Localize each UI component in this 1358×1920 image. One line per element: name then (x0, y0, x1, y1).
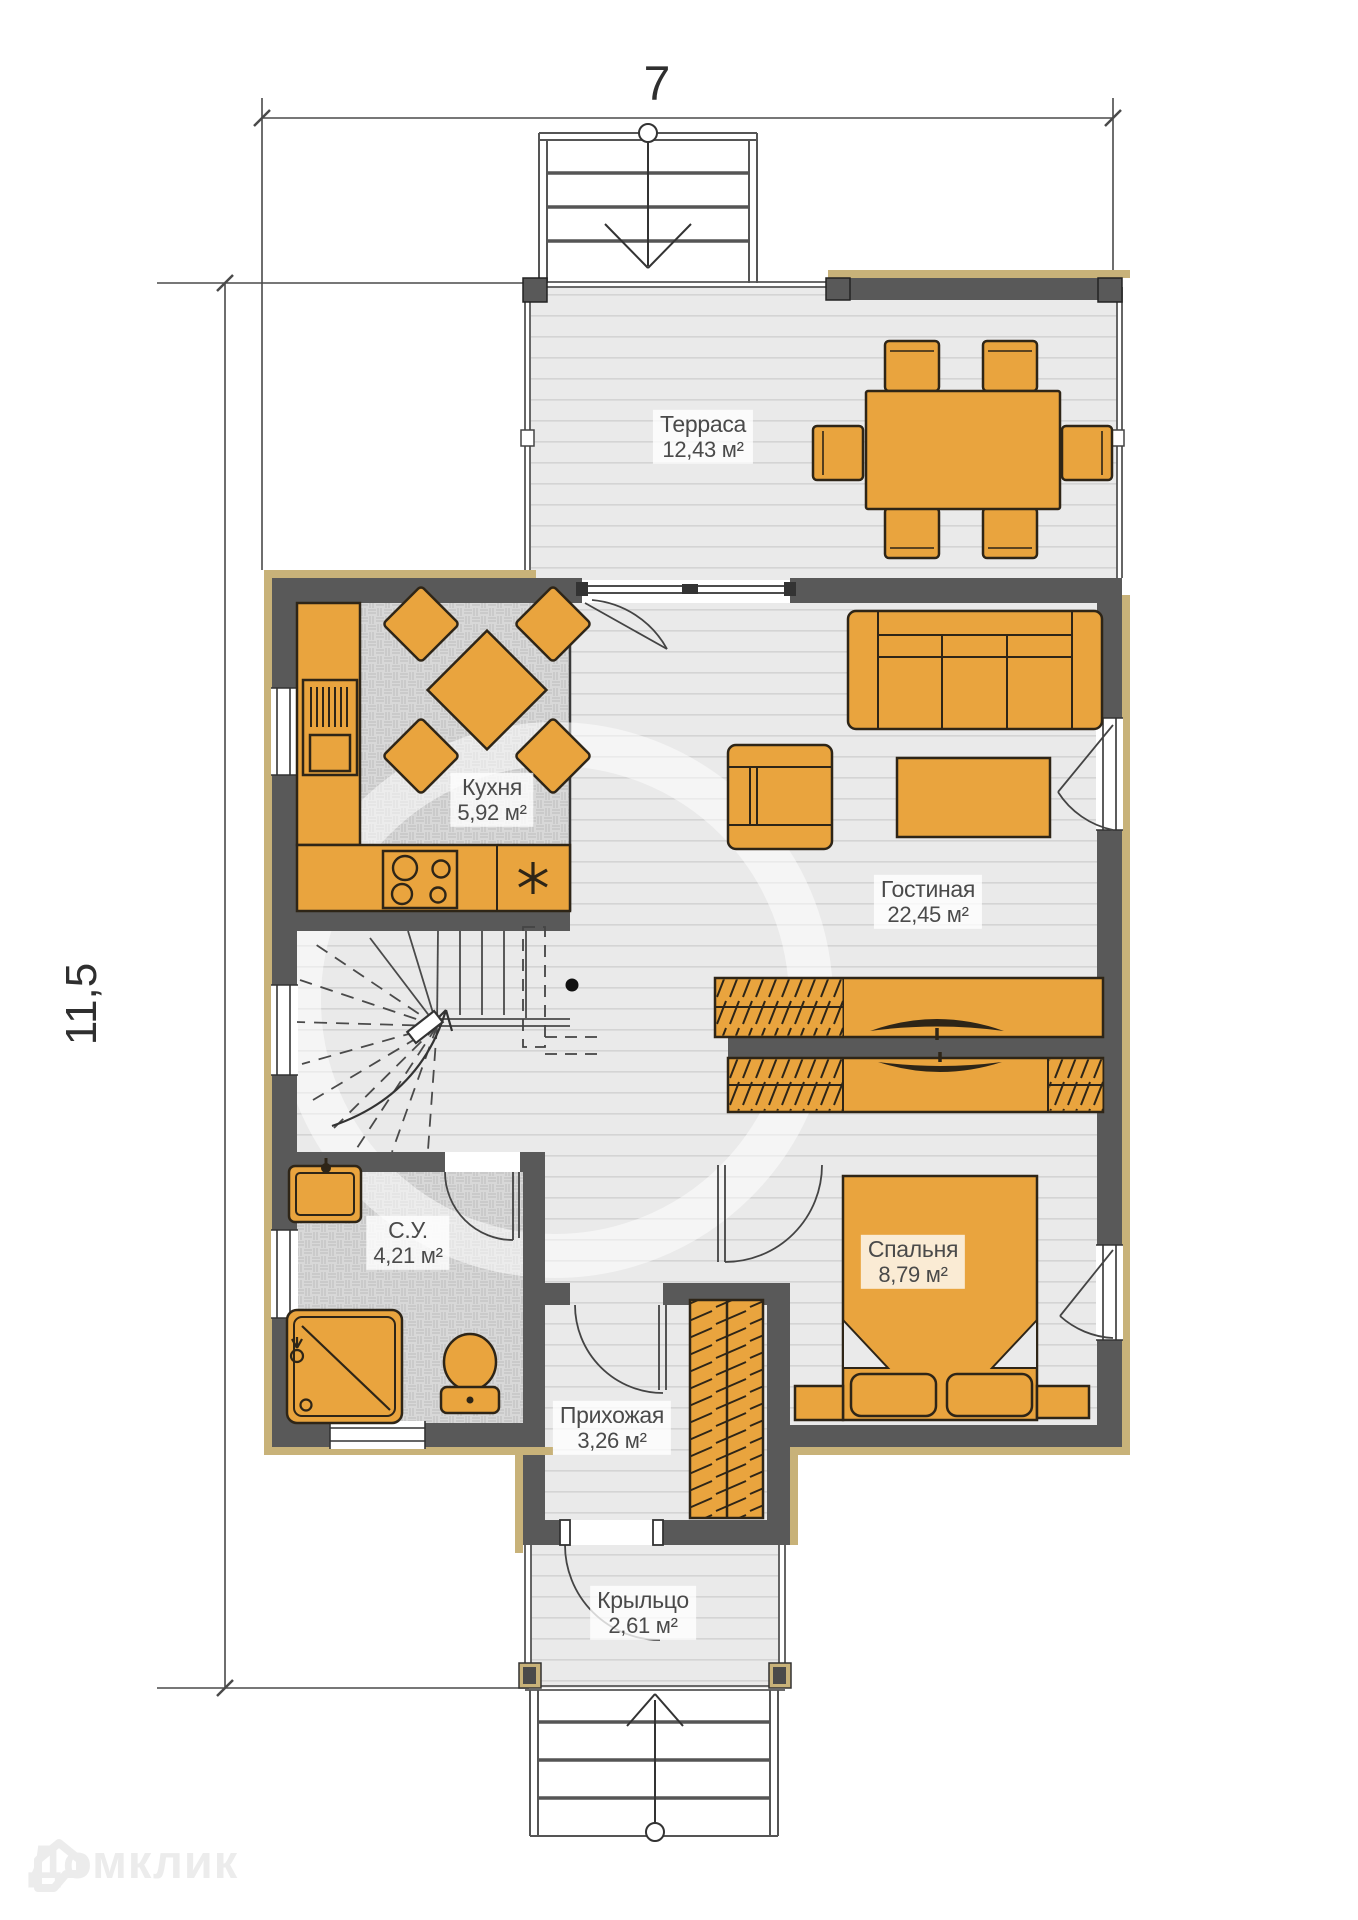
room-area: 12,43 м² (660, 438, 746, 463)
toilet-bowl (444, 1334, 496, 1390)
room-name: Гостиная (881, 877, 975, 903)
sofa (848, 611, 1102, 729)
room-area: 5,92 м² (457, 801, 526, 826)
chair (983, 508, 1037, 558)
dimension-width-label: 7 (644, 57, 671, 112)
chair (885, 508, 939, 558)
room-label-terrace: Терраса 12,43 м² (653, 410, 753, 464)
nightstand (1037, 1386, 1089, 1418)
pillow (947, 1374, 1032, 1416)
room-label-living: Гостиная 22,45 м² (874, 875, 982, 929)
room-area: 3,26 м² (560, 1429, 664, 1454)
porch-stairs (530, 1690, 778, 1841)
nightstand (795, 1386, 843, 1420)
armchair (728, 745, 832, 849)
coffee-table (897, 758, 1050, 837)
dining-table (866, 391, 1060, 509)
bathroom-sink (289, 1166, 361, 1222)
room-label-hallway: Прихожая 3,26 м² (553, 1401, 671, 1455)
room-name: Спальня (868, 1237, 958, 1263)
wardrobe-hatch (717, 980, 843, 1007)
room-label-bedroom: Спальня 8,79 м² (861, 1235, 965, 1289)
room-area: 4,21 м² (373, 1244, 442, 1269)
terrace-column (523, 278, 547, 302)
kitchen-furniture (297, 586, 591, 911)
stair-post-dot (566, 979, 579, 992)
room-area: 8,79 м² (868, 1263, 958, 1288)
room-label-kitchen: Кухня 5,92 м² (450, 773, 533, 827)
room-label-bathroom: С.У. 4,21 м² (366, 1216, 449, 1270)
room-area: 22,45 м² (881, 903, 975, 928)
terrace-column (826, 278, 850, 300)
chair (983, 341, 1037, 391)
room-name: Прихожая (560, 1403, 664, 1429)
chair (1062, 426, 1112, 480)
domclick-house-icon (28, 1834, 90, 1896)
floor-plan: Терраса 12,43 м² Кухня 5,92 м² Гостиная … (0, 0, 1358, 1920)
wardrobe-hatch (730, 1060, 843, 1086)
room-name: Крыльцо (597, 1588, 689, 1614)
chair (813, 426, 863, 480)
terrace-stairs (539, 124, 757, 283)
chair (885, 341, 939, 391)
room-label-porch: Крыльцо 2,61 м² (590, 1586, 696, 1640)
dimension-height-label: 11,5 (57, 963, 107, 1045)
terrace-column (1098, 278, 1122, 302)
room-name: С.У. (373, 1218, 442, 1244)
brand-watermark: Домклик (28, 1834, 238, 1889)
room-name: Кухня (457, 775, 526, 801)
hallway-furniture (690, 1300, 763, 1518)
pillow (851, 1374, 936, 1416)
room-name: Терраса (660, 412, 746, 438)
room-area: 2,61 м² (597, 1614, 689, 1639)
